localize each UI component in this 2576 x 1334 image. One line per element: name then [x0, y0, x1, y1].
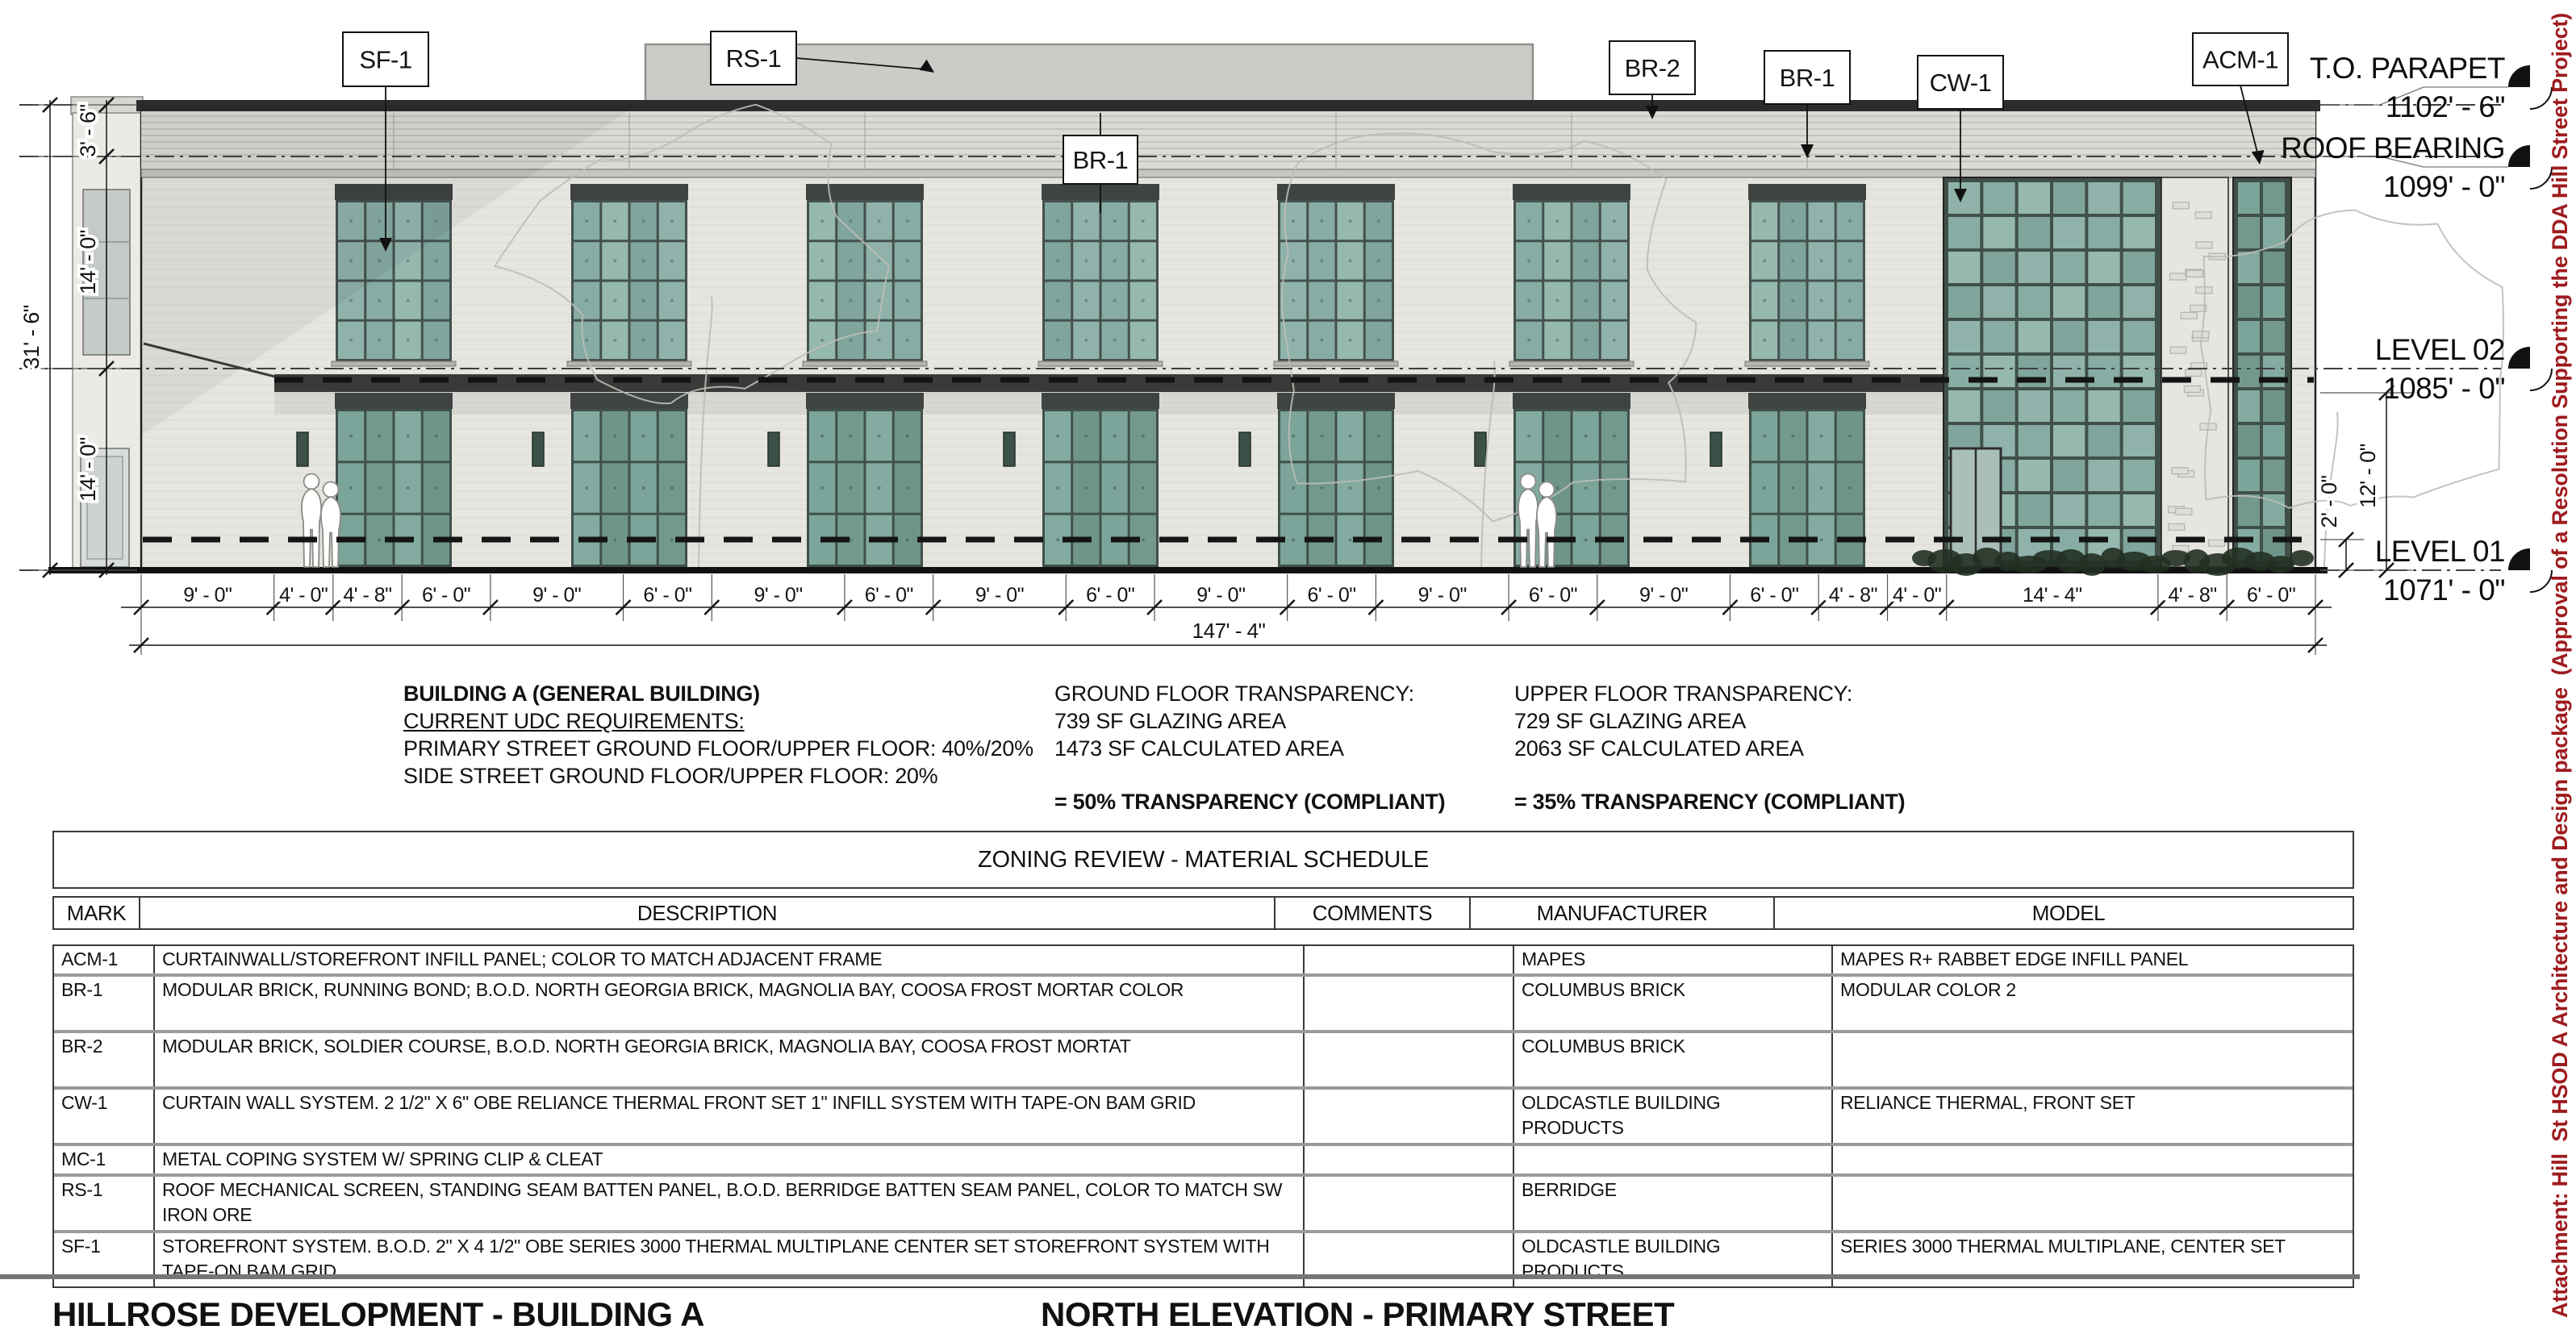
svg-text:6' - 0": 6' - 0" [865, 584, 913, 607]
svg-text:6' - 0": 6' - 0" [643, 584, 691, 607]
table-cell: MODULAR BRICK, RUNNING BOND; B.O.D. NORT… [153, 977, 1303, 1030]
ground-glazing-area: 739 SF GLAZING AREA [1054, 707, 1445, 735]
table-cell: CURTAIN WALL SYSTEM. 2 1/2" X 6" OBE REL… [153, 1090, 1303, 1143]
table-row-BR-2: BR-2MODULAR BRICK, SOLDIER COURSE, B.O.D… [54, 1030, 2353, 1086]
svg-text:9' - 0": 9' - 0" [1418, 584, 1467, 607]
table-cell: BR-1 [54, 977, 153, 1030]
svg-text:9' - 0": 9' - 0" [1196, 584, 1245, 607]
svg-text:CW-1: CW-1 [1930, 69, 1992, 97]
svg-text:6' - 0": 6' - 0" [1086, 584, 1134, 607]
level-name-1: T.O. PARAPET [2310, 52, 2505, 85]
table-row-RS-1: RS-1ROOF MECHANICAL SCREEN, STANDING SEA… [54, 1174, 2353, 1230]
material-schedule: ZONING REVIEW - MATERIAL SCHEDULE MARK D… [52, 831, 2354, 1288]
upper-transparency-title: UPPER FLOOR TRANSPARENCY: [1514, 680, 1905, 707]
svg-text:4' - 8": 4' - 8" [1829, 584, 1877, 607]
table-cell: RS-1 [54, 1177, 153, 1230]
building-a-title: BUILDING A (GENERAL BUILDING) [403, 680, 1033, 707]
upper-transparency-result: = 35% TRANSPARENCY (COMPLIANT) [1514, 788, 1905, 815]
svg-text:9' - 0": 9' - 0" [183, 584, 232, 607]
drawing-sheet: { "drawing": { "view_name": "NORTH ELEVA… [0, 0, 2576, 1322]
svg-text:6' - 0": 6' - 0" [1750, 584, 1798, 607]
table-cell: MAPES R+ RABBET EDGE INFILL PANEL [1831, 946, 2435, 973]
column-manufacturer: MANUFACTURER [1469, 898, 1773, 928]
elevation-drawing: 9' - 0"4' - 0"4' - 8"6' - 0"9' - 0"6' - … [0, 0, 2576, 669]
table-cell [1831, 1177, 2435, 1230]
level-name-3: LEVEL 02 [2375, 333, 2505, 367]
table-cell: METAL COPING SYSTEM W/ SPRING CLIP & CLE… [153, 1146, 1303, 1174]
project-title: HILLROSE DEVELOPMENT - BUILDING A [52, 1295, 704, 1334]
table-cell: MAPES [1513, 946, 1831, 973]
svg-text:ACM-1: ACM-1 [2202, 46, 2278, 74]
table-cell: COLUMBUS BRICK [1513, 977, 1831, 1030]
table-cell [1513, 1146, 1831, 1174]
svg-text:SF-1: SF-1 [359, 46, 411, 74]
level-name-4: LEVEL 01 [2375, 535, 2505, 569]
table-cell: BERRIDGE [1513, 1177, 1831, 1230]
svg-text:6' - 0": 6' - 0" [1307, 584, 1355, 607]
schedule-rows: ACM-1CURTAINWALL/STOREFRONT INFILL PANEL… [52, 944, 2354, 1288]
svg-text:6' - 0": 6' - 0" [422, 584, 470, 607]
level-elevation-4: 1071' - 0" [2383, 573, 2505, 607]
svg-text:4' - 8": 4' - 8" [2168, 584, 2216, 607]
svg-text:BR-2: BR-2 [1625, 54, 1680, 82]
side-street-note: SIDE STREET GROUND FLOOR/UPPER FLOOR: 20… [403, 762, 1033, 790]
table-cell: MODULAR BRICK, SOLDIER COURSE, B.O.D. NO… [153, 1033, 1303, 1086]
table-cell [1303, 977, 1513, 1030]
svg-text:14' - 0": 14' - 0" [76, 437, 100, 502]
column-mark: MARK [54, 898, 139, 928]
primary-street-note: PRIMARY STREET GROUND FLOOR/UPPER FLOOR:… [403, 735, 1033, 762]
table-cell: ROOF MECHANICAL SCREEN, STANDING SEAM BA… [153, 1177, 1303, 1230]
svg-text:14' - 4": 14' - 4" [2023, 584, 2082, 607]
table-cell: ACM-1 [54, 946, 153, 973]
svg-text:31' - 6": 31' - 6" [19, 305, 44, 369]
svg-text:147' - 4": 147' - 4" [1192, 619, 1266, 643]
table-row-ACM-1: ACM-1CURTAINWALL/STOREFRONT INFILL PANEL… [54, 946, 2353, 973]
level-elevation-2: 1099' - 0" [2383, 170, 2505, 204]
table-cell: CURTAINWALL/STOREFRONT INFILL PANEL; COL… [153, 946, 1303, 973]
table-cell [1831, 1033, 2435, 1086]
ground-floor-transparency: GROUND FLOOR TRANSPARENCY: 739 SF GLAZIN… [1054, 680, 1445, 815]
building-a-notes: BUILDING A (GENERAL BUILDING) CURRENT UD… [403, 680, 1033, 790]
table-cell: RELIANCE THERMAL, FRONT SET [1831, 1090, 2435, 1143]
titleblock-divider [0, 1274, 2360, 1279]
svg-text:9' - 0": 9' - 0" [754, 584, 803, 607]
svg-text:9' - 0": 9' - 0" [975, 584, 1024, 607]
ground-transparency-title: GROUND FLOOR TRANSPARENCY: [1054, 680, 1445, 707]
svg-text:9' - 0": 9' - 0" [1639, 584, 1688, 607]
table-cell: OLDCASTLE BUILDING PRODUCTS [1513, 1090, 1831, 1143]
column-description: DESCRIPTION [139, 898, 1274, 928]
table-row-MC-1: MC-1METAL COPING SYSTEM W/ SPRING CLIP &… [54, 1143, 2353, 1174]
svg-text:4' - 0": 4' - 0" [1893, 584, 1941, 607]
table-cell: MC-1 [54, 1146, 153, 1174]
upper-calculated-area: 2063 SF CALCULATED AREA [1514, 735, 1905, 762]
level-elevation-1: 1102' - 6" [2386, 90, 2505, 124]
svg-text:4' - 8": 4' - 8" [343, 584, 391, 607]
upper-floor-transparency: UPPER FLOOR TRANSPARENCY: 729 SF GLAZING… [1514, 680, 1905, 815]
table-row-BR-1: BR-1MODULAR BRICK, RUNNING BOND; B.O.D. … [54, 973, 2353, 1030]
schedule-title: ZONING REVIEW - MATERIAL SCHEDULE [52, 831, 2354, 889]
table-cell [1303, 1146, 1513, 1174]
table-cell: MODULAR COLOR 2 [1831, 977, 2435, 1030]
attachment-sidebar-text: Attachment: Hill St HSOD A Architecture … [2548, 13, 2573, 1318]
ground-calculated-area: 1473 SF CALCULATED AREA [1054, 735, 1445, 762]
column-comments: COMMENTS [1274, 898, 1469, 928]
svg-text:RS-1: RS-1 [726, 44, 782, 73]
svg-text:9' - 0": 9' - 0" [532, 584, 581, 607]
view-title: NORTH ELEVATION - PRIMARY STREET [1041, 1295, 1674, 1334]
ground-transparency-result: = 50% TRANSPARENCY (COMPLIANT) [1054, 788, 1445, 815]
table-cell: BR-2 [54, 1033, 153, 1086]
upper-glazing-area: 729 SF GLAZING AREA [1514, 707, 1905, 735]
svg-text:4' - 0": 4' - 0" [279, 584, 328, 607]
table-cell [1303, 946, 1513, 973]
table-cell [1303, 1090, 1513, 1143]
schedule-header: MARK DESCRIPTION COMMENTS MANUFACTURER M… [52, 896, 2354, 930]
table-cell: CW-1 [54, 1090, 153, 1143]
svg-text:12' - 0": 12' - 0" [2356, 444, 2380, 508]
table-cell [1303, 1033, 1513, 1086]
svg-text:BR-1: BR-1 [1073, 146, 1129, 174]
level-name-2: ROOF BEARING [2281, 131, 2505, 165]
svg-text:3' - 6": 3' - 6" [76, 104, 100, 156]
table-cell [1303, 1177, 1513, 1230]
svg-text:6' - 0": 6' - 0" [1529, 584, 1577, 607]
svg-text:2' - 0": 2' - 0" [2317, 475, 2341, 527]
table-cell [1831, 1146, 2435, 1174]
level-elevation-3: 1085' - 0" [2383, 372, 2505, 406]
table-cell: COLUMBUS BRICK [1513, 1033, 1831, 1086]
svg-text:6' - 0": 6' - 0" [2247, 584, 2295, 607]
svg-text:BR-1: BR-1 [1780, 64, 1835, 92]
svg-text:14' - 0": 14' - 0" [76, 230, 100, 294]
udc-requirements: CURRENT UDC REQUIREMENTS: [403, 707, 1033, 735]
table-row-CW-1: CW-1CURTAIN WALL SYSTEM. 2 1/2" X 6" OBE… [54, 1086, 2353, 1143]
column-model: MODEL [1773, 898, 2362, 928]
